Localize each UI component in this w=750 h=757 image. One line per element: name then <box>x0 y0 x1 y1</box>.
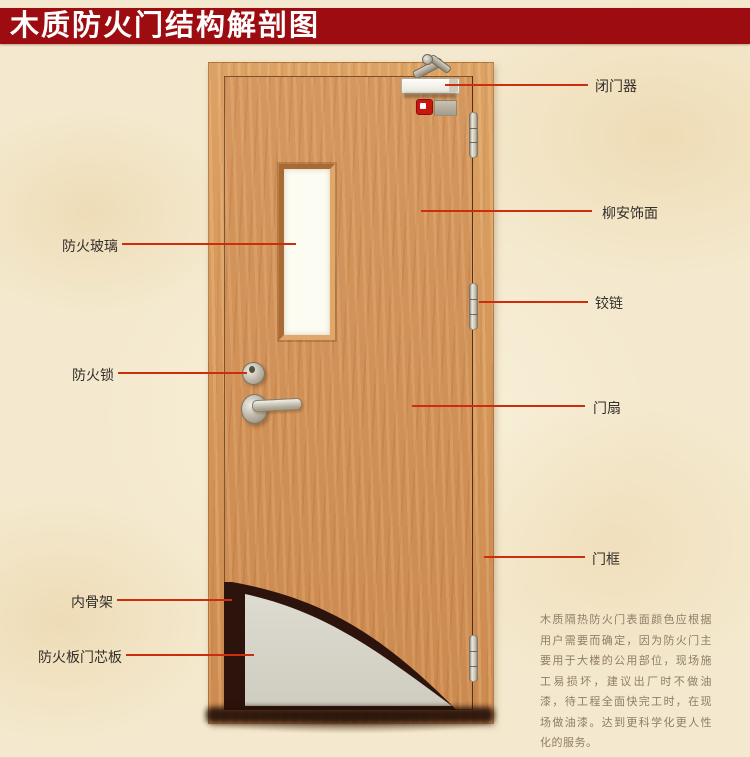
leader-line-door-frame <box>484 556 585 558</box>
leader-line-hinge <box>479 301 588 303</box>
page-title: 木质防火门结构解剖图 <box>10 9 320 43</box>
leader-line-fire-lock <box>118 372 247 374</box>
description-paragraph: 木质隔热防火门表面颜色应根据用户需要而确定，因为防火门主要用于大楼的公用部位，现… <box>540 610 712 754</box>
leaf-frame-gap <box>472 76 473 710</box>
door-closer-joint <box>422 54 433 65</box>
label-door-frame: 门框 <box>592 549 620 569</box>
hinge-top <box>469 112 478 158</box>
label-lauan-veneer: 柳安饰面 <box>602 203 658 223</box>
leader-line-inner-skeleton <box>117 599 232 601</box>
alarm-indicator-dot <box>420 103 426 109</box>
title-banner: 木质防火门结构解剖图 <box>0 8 750 44</box>
fire-board-core-shape <box>245 594 452 706</box>
keyhole <box>249 366 255 373</box>
door-closer-shadow <box>404 93 456 98</box>
label-inner-skeleton: 内骨架 <box>40 592 113 612</box>
hinge-bottom <box>469 635 478 682</box>
leader-line-door-closer <box>445 84 588 86</box>
fire-glass-window <box>279 164 335 340</box>
leader-line-lauan-veneer <box>421 210 592 212</box>
label-hinge: 铰链 <box>595 293 623 313</box>
leader-line-fire-glass <box>122 243 296 245</box>
cutaway-section <box>224 578 474 710</box>
label-fire-glass: 防火玻璃 <box>40 236 118 256</box>
label-door-closer: 闭门器 <box>595 76 637 96</box>
label-door-leaf: 门扇 <box>593 398 621 418</box>
label-fire-board-core: 防火板门芯板 <box>34 647 122 667</box>
leader-line-door-leaf <box>412 405 585 407</box>
release-device <box>434 100 457 116</box>
door-bottom-shadow <box>206 707 494 723</box>
hinge-middle <box>469 283 478 330</box>
leader-line-fire-board-core <box>126 654 254 656</box>
label-fire-lock: 防火锁 <box>40 365 114 385</box>
infographic-canvas: 木质防火门结构解剖图 闭门器 柳安饰面 铰链 门扇 <box>0 0 750 757</box>
